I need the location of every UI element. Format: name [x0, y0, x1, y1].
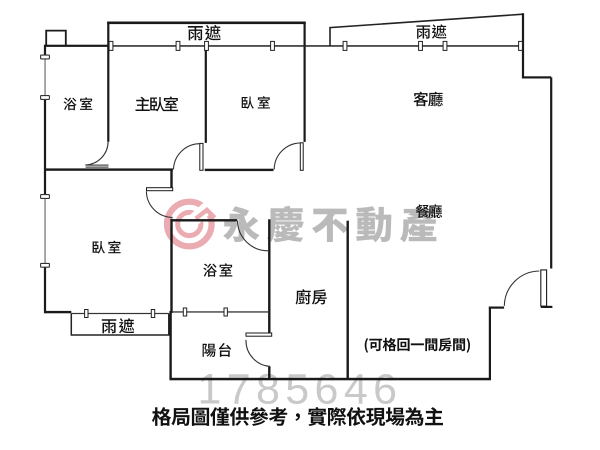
svg-text:1785646: 1785646 — [198, 366, 398, 414]
